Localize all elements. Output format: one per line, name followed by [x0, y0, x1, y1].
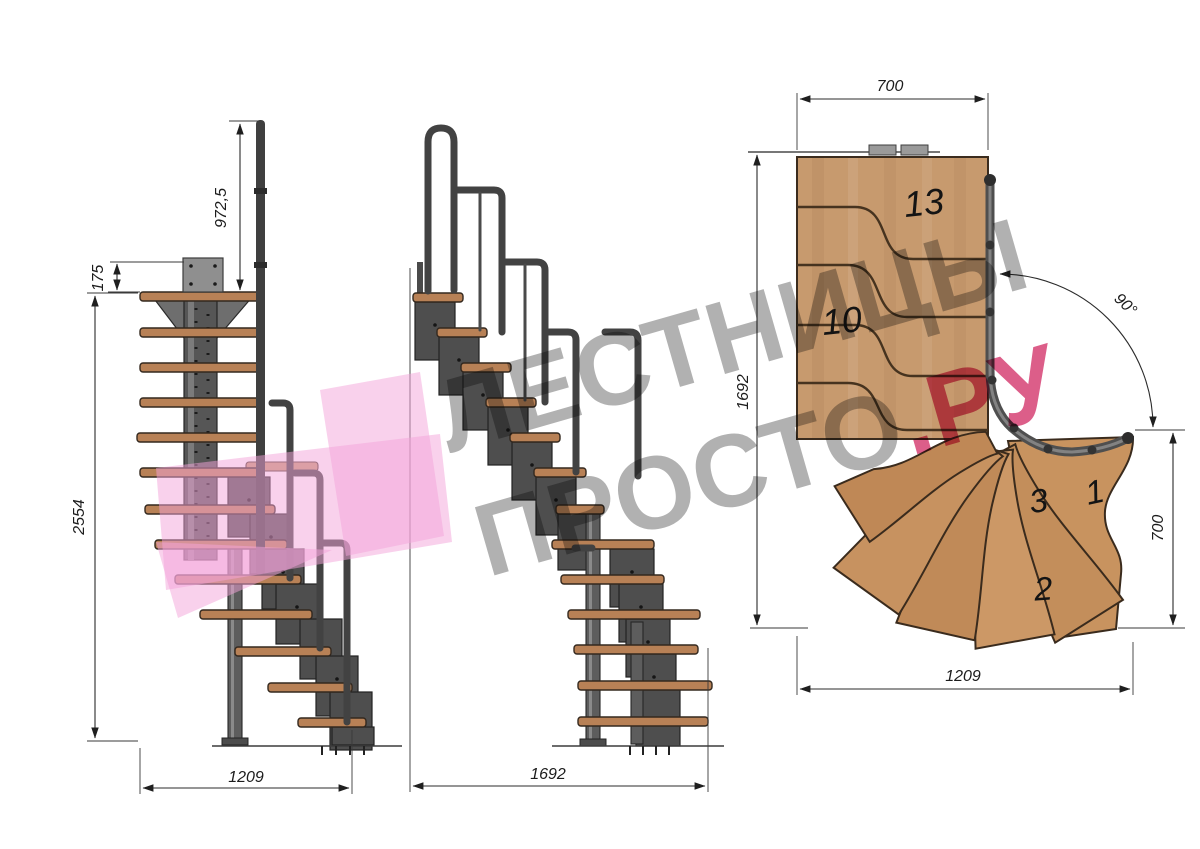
dim-front-base-length: 1692 — [530, 766, 566, 783]
wall-bracket — [417, 262, 423, 293]
tread — [561, 575, 664, 584]
dim-plan-bottom-width: 1209 — [945, 668, 981, 685]
dim-plan-side-length: 1692 — [735, 374, 752, 410]
tread — [486, 398, 536, 407]
tread — [556, 505, 604, 514]
staircase-technical-drawing: 972,5 175 2554 1209 — [0, 0, 1200, 849]
tread — [140, 398, 260, 407]
tread — [268, 683, 352, 692]
ground-line — [212, 746, 402, 755]
plan-handrail — [984, 174, 1134, 455]
dim-plan-top-width: 700 — [877, 78, 904, 95]
tread-label-2: 2 — [1032, 569, 1054, 607]
tread — [298, 718, 366, 727]
dim-side-base-width: 1209 — [228, 769, 264, 786]
tread — [200, 610, 312, 619]
drawing-svg: 972,5 175 2554 1209 — [0, 0, 1200, 849]
tread — [461, 363, 511, 372]
tread — [568, 610, 700, 619]
tread-label-13: 13 — [902, 180, 946, 225]
plan-view: 13 10 3 1 2 700 1692 700 1209 90° — [735, 78, 1185, 695]
tread — [140, 363, 260, 372]
dim-rail-height: 972,5 — [213, 188, 230, 228]
dim-plan-right-width: 700 — [1150, 515, 1167, 542]
tread — [510, 433, 560, 442]
wall-tabs — [869, 145, 928, 155]
wall-mount-plate — [183, 258, 223, 292]
tread — [137, 433, 260, 442]
tread — [552, 540, 654, 549]
tread — [140, 292, 260, 301]
tread — [574, 645, 698, 654]
tread-label-10: 10 — [820, 298, 864, 343]
tread — [140, 328, 260, 337]
dim-mount-offset: 175 — [90, 265, 107, 292]
front-ground-line — [552, 746, 724, 755]
dim-turn-angle: 90° — [1111, 290, 1141, 319]
dim-total-height: 2554 — [71, 499, 88, 536]
tread — [413, 293, 463, 302]
front-elevation-view: 1692 — [410, 128, 724, 792]
tread — [578, 681, 712, 690]
tread — [578, 717, 708, 726]
plan-upper-flight — [797, 157, 988, 439]
